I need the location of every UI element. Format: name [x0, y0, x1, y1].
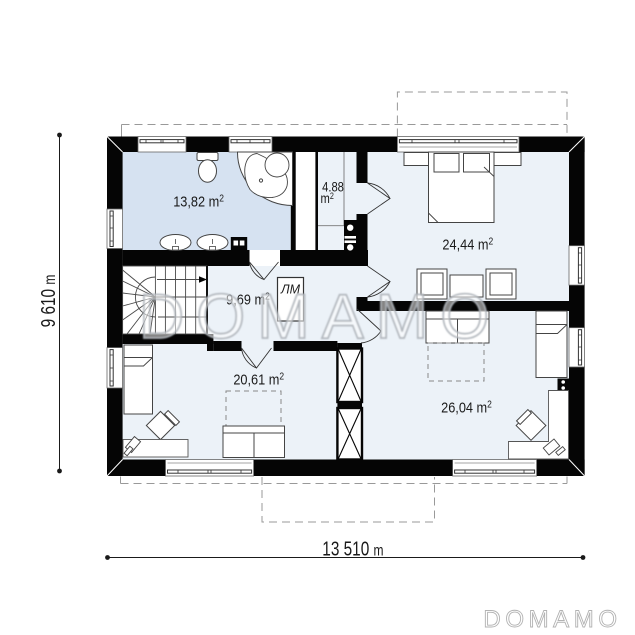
svg-text:20,61 m2: 20,61 m2	[233, 370, 284, 387]
svg-text:DOMAMO: DOMAMO	[139, 282, 501, 352]
svg-text:DOMAMO: DOMAMO	[483, 606, 621, 633]
svg-text:13 510 m: 13 510 m	[322, 537, 383, 560]
svg-text:13,82 m2: 13,82 m2	[173, 192, 224, 209]
svg-text:24,44 m2: 24,44 m2	[442, 235, 493, 252]
svg-text:26,04 m2: 26,04 m2	[441, 398, 492, 415]
svg-text:9 610 m: 9 610 m	[37, 275, 60, 328]
